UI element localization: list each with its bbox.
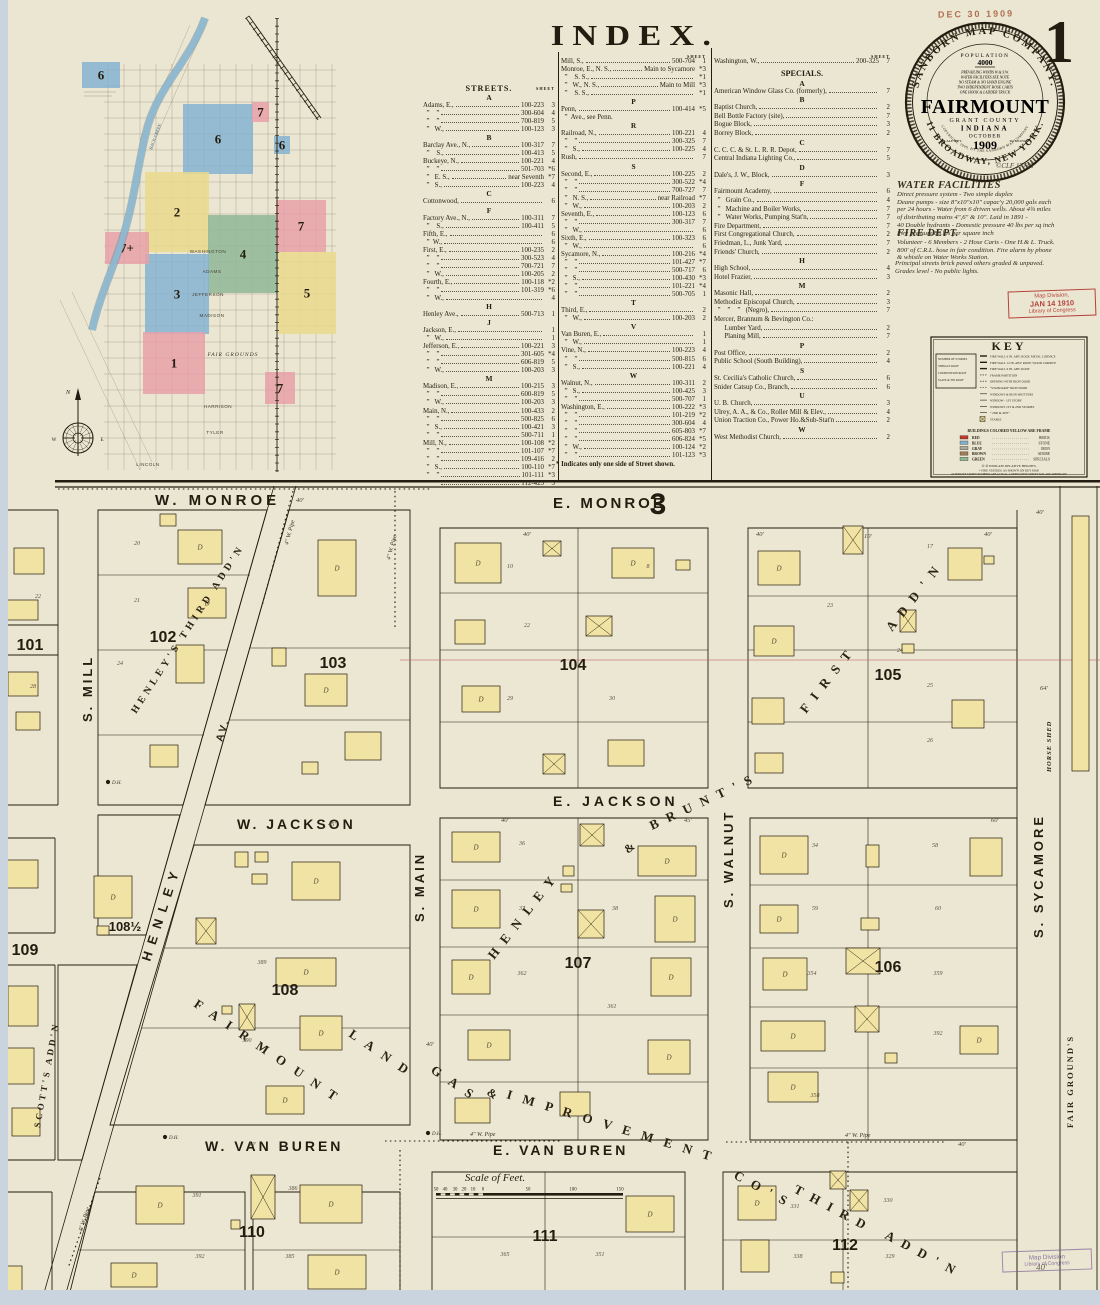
- index-row: Mercer, Brannum & Bevington Co.:: [714, 316, 890, 325]
- index-row: Ulrey, A. A., & Co., Roller Mill & Elev.…: [714, 409, 890, 418]
- key-color-chip: [960, 446, 968, 449]
- index-row: ” E. S.,near Seventh*7: [423, 174, 555, 182]
- overview-sheet-number: 7: [277, 381, 284, 396]
- index-row: ” ”300-6044: [561, 420, 706, 428]
- index-section-letter: V: [561, 323, 706, 331]
- key-alt-note: ALTERNATE STREET NUMBERS ARE ACTUAL, CON…: [951, 473, 1067, 476]
- index-row: ” ” ” (Negro),7: [714, 307, 890, 316]
- street-label: E. JACKSON: [553, 793, 679, 809]
- dwelling-mark: D: [770, 638, 776, 646]
- population-value: 4000: [978, 58, 993, 67]
- dimension-label: 40': [523, 531, 532, 538]
- lot-number: 389: [257, 960, 267, 966]
- lot-number: 385: [285, 1254, 295, 1260]
- svg-text:WATER FACILITIES SEE NOTE: WATER FACILITIES SEE NOTE: [961, 76, 1010, 80]
- index-section-letter: W: [714, 426, 890, 434]
- street-paving-note: Principal streets brick paved others gra…: [895, 260, 1099, 275]
- index-streets-column-2: SHEET Mill, S.,500-7041Monroe, E., N. S.…: [561, 52, 706, 460]
- lot-number: 21: [134, 598, 140, 604]
- compass-rose-icon: W E N: [52, 388, 104, 456]
- dwelling-mark: D: [109, 894, 115, 902]
- fire-dept-note: FIRE DEPT. Volunteer - 6 Members - 2 Hos…: [897, 228, 1099, 262]
- dimension-label: 40': [756, 531, 765, 538]
- index-column-rule: [558, 52, 559, 480]
- scale-tick: 20: [462, 1188, 467, 1193]
- index-section-letter: J: [423, 319, 555, 327]
- index-row: First, E.,100-2352: [423, 247, 555, 255]
- library-of-congress-stamp: Map Division, JAN 14 1910 Library of Con…: [1008, 288, 1097, 318]
- overview-sheet-number: 6: [279, 138, 286, 153]
- building: [97, 926, 109, 935]
- index-row: ” ”101-111*3: [423, 472, 555, 480]
- scale-tick: 30: [453, 1188, 458, 1193]
- dwelling-mark: D: [753, 1200, 759, 1208]
- index-row: West Methodist Church,2: [714, 434, 890, 443]
- building: [150, 745, 178, 767]
- dwelling-mark: D: [467, 974, 473, 982]
- fair-grounds-label: FAIR GROUNDS: [207, 352, 259, 358]
- dwelling-mark: D: [477, 696, 483, 704]
- index-row: Washington, W.,200-3257: [714, 58, 890, 67]
- key-symbol-label: OPENING WITH IRON DOOR: [990, 380, 1031, 384]
- index-row: Fifth, E.,6: [423, 231, 555, 239]
- index-row: High School,4: [714, 265, 890, 274]
- block-number: 112: [832, 1237, 858, 1254]
- index-footnote: * Indicates only one side of Street show…: [556, 461, 675, 468]
- overview-street-label: TYLER: [206, 430, 223, 435]
- key-side-label: NUMBER OF STORIES: [938, 357, 968, 361]
- compass-spoke: [84, 440, 92, 443]
- svg-text:W: W: [52, 438, 57, 443]
- dwelling-mark: D: [312, 878, 318, 886]
- note-line: Grades level - No public lights.: [895, 268, 1099, 276]
- key-side-label: COMPOSITION ROOF: [938, 371, 967, 375]
- building: [861, 918, 879, 930]
- building: [984, 556, 994, 564]
- key-side-label: SLATE & TIN ROOF: [938, 378, 964, 382]
- building: [948, 548, 982, 580]
- grid-line: [60, 300, 140, 470]
- building: [160, 514, 176, 526]
- index-section-letter: S: [714, 367, 890, 375]
- building: [6, 860, 38, 888]
- overview-sheet-number: 7: [257, 105, 264, 120]
- index-section-letter: F: [423, 207, 555, 215]
- block-number: 108½: [109, 919, 142, 934]
- key-symbol-label: WINDOWS & IRON SHUTTERS: [990, 392, 1034, 396]
- index-row: Sixth, E.,100-3236: [561, 235, 706, 243]
- index-section-letter: W: [561, 372, 706, 380]
- index-row: ” Grain Co.,4: [714, 197, 890, 206]
- dwelling-mark: D: [130, 1272, 136, 1280]
- dwelling-mark: D: [671, 916, 677, 924]
- key-color-name: RED: [972, 436, 980, 440]
- dwelling-mark: D: [789, 1033, 795, 1041]
- dwelling-mark: D: [789, 1084, 795, 1092]
- copyright-code: ©CLF 17745: [996, 162, 1033, 170]
- svg-text:SCALE 50FT.: SCALE 50FT.: [942, 139, 962, 143]
- dwelling-mark: D: [775, 565, 781, 573]
- key-symbol-label: WINDOWS 1ST & 2ND STORIES: [990, 405, 1035, 409]
- compass-spoke: [80, 427, 88, 435]
- dwelling-mark: D: [780, 852, 786, 860]
- building: [302, 762, 318, 774]
- index-section-letter: T: [561, 299, 706, 307]
- compass-spoke: [72, 444, 75, 452]
- city-name: FAIRMOUNT: [921, 96, 1050, 118]
- lot-number: 362: [517, 971, 527, 977]
- overview-sheet-number: 6: [215, 132, 222, 147]
- scale-tick: 150: [616, 1188, 624, 1193]
- index-section-letter: P: [714, 342, 890, 350]
- index-row: Lumber Yard,2: [714, 325, 890, 334]
- building: [608, 740, 644, 766]
- block-number: 105: [875, 667, 902, 684]
- lot-number: 338: [793, 1254, 803, 1260]
- lot-number: 329: [885, 1254, 895, 1260]
- building: [252, 874, 267, 884]
- building: [561, 884, 572, 892]
- block-number: 103: [320, 655, 347, 672]
- lot-number: 351: [595, 1252, 605, 1258]
- index-row: Sycamore, N.,100-216*4: [561, 251, 706, 259]
- index-row: ” ”500-7111: [423, 432, 555, 440]
- dimension-label: 40': [984, 531, 993, 538]
- block-number: 108: [272, 982, 299, 999]
- dwelling-mark: D: [629, 560, 635, 568]
- main-map: DDDDDDDDDDDDDDDDDDDDDDDDDDDDDDDDDD 4″ W.…: [0, 480, 1100, 1305]
- index-row: ” W.,100-2032: [561, 203, 706, 211]
- index-row: ” ”500-7071: [561, 396, 706, 404]
- lot-number: 58: [932, 843, 938, 849]
- scale-tick: 40: [443, 1188, 448, 1193]
- index-section-letter: R: [561, 122, 706, 130]
- index-row: ” ”300-522*4: [561, 179, 706, 187]
- index-row: St. Cecilia's Catholic Church,6: [714, 375, 890, 384]
- compass-spoke: [64, 440, 72, 443]
- lot-number: 28: [30, 684, 36, 690]
- lot-number: 24: [897, 647, 903, 654]
- note-line: Deane pumps - size 8″x10″x10″ capac'y 20…: [897, 199, 1099, 207]
- hydrant-label: D.H.: [431, 1132, 442, 1137]
- dwelling-mark: D: [474, 560, 480, 568]
- key-color-name: GRAY: [972, 447, 983, 451]
- lot-number: 37: [518, 906, 526, 912]
- index-row: ” ”300-3257: [561, 138, 706, 146]
- index-section-letter: M: [714, 282, 890, 290]
- index-row: Friedman, L., Junk Yard,7: [714, 240, 890, 249]
- key-color-material: STONE: [1038, 441, 1050, 445]
- scan-edge: [0, 0, 8, 1305]
- key-color-material: SPECIALS: [1033, 458, 1050, 462]
- index-row: ” W.,100-124*2: [561, 444, 706, 452]
- key-symbol-label: “STANDARD” IRON DOOR: [990, 385, 1028, 390]
- lot-number: 392: [933, 1031, 943, 1037]
- index-row: ” ”501-703*6: [423, 166, 555, 174]
- block-number: 104: [560, 657, 587, 674]
- compass-spoke: [80, 444, 83, 452]
- lot-number: 38: [611, 906, 618, 912]
- lot-number: 24: [117, 660, 123, 667]
- dwelling-mark: D: [667, 974, 673, 982]
- overview-key-map: 6667247357+17 WASHINGTONADAMSJEFFERSONMA…: [0, 0, 440, 478]
- index-row: Fairmount Academy,6: [714, 188, 890, 197]
- index-section-letter: P: [561, 98, 706, 106]
- note-line: Principal streets brick paved others gra…: [895, 260, 1099, 268]
- svg-text:TO AN INCH: TO AN INCH: [1009, 139, 1029, 143]
- street-label: S. WALNUT: [721, 810, 736, 909]
- dimension-label: 40': [1036, 509, 1045, 516]
- index-row: Jackson, E.,1: [423, 327, 555, 335]
- dwelling-mark: D: [665, 1054, 671, 1062]
- key-color-material: BRICK: [1039, 436, 1050, 440]
- svg-text:PREVAILING WINDS W.& S.W.: PREVAILING WINDS W.& S.W.: [960, 71, 1009, 75]
- index-row: ” W.,100-2052: [423, 271, 555, 279]
- lot-number: 391: [192, 1193, 202, 1199]
- index-row: ” S.,100-110*7: [423, 464, 555, 472]
- dwelling-mark: D: [663, 858, 669, 866]
- lot-number: 354: [807, 970, 817, 977]
- dimension-label: 45': [328, 821, 337, 828]
- note-line: 800' of C.R.L. hose in fair condition. F…: [897, 247, 1099, 255]
- building: [885, 1053, 897, 1063]
- index-section-letter: M: [423, 375, 555, 383]
- lot-number: 330: [883, 1198, 893, 1204]
- dimension-label: 64': [1040, 685, 1049, 692]
- building: [235, 852, 248, 867]
- lot-number: 17: [927, 544, 934, 550]
- key-color-material: IRON: [1041, 447, 1050, 451]
- index-row: Barclay Ave., N.,100-3177: [423, 142, 555, 150]
- index-row: ” ”300-5234: [423, 255, 555, 263]
- block-number: 107: [565, 955, 592, 972]
- key-symbol-label: ” 2ND & 4TH ”: [990, 411, 1011, 415]
- dwelling-mark: D: [472, 844, 478, 852]
- building: [455, 620, 485, 644]
- overview-sheet-number: 3: [174, 287, 181, 302]
- index-section-letter: C: [423, 190, 555, 198]
- compass-spoke: [80, 440, 88, 448]
- index-row: Seventh, E.,100-1236: [561, 211, 706, 219]
- lot-number: 34: [811, 842, 818, 849]
- county-name: GRANT COUNTY: [949, 118, 1020, 124]
- subdivision-label: HORSE SHED: [1046, 721, 1053, 773]
- index-row: ” ”301-605*4: [423, 351, 555, 359]
- index-row: Buckeye, N.,100-2214: [423, 158, 555, 166]
- overview-sheet-number: 1: [171, 356, 178, 371]
- index-row: ” ”101-319*6: [423, 287, 555, 295]
- dwelling-mark: D: [781, 971, 787, 979]
- index-row: Third, E.,2: [561, 307, 706, 315]
- index-row: ” ”109-4162: [423, 456, 555, 464]
- key-color-name: BLUE: [972, 441, 982, 445]
- building: [255, 852, 268, 862]
- sheet-number: 1: [1044, 8, 1074, 77]
- index-row: ” ”300-6044: [423, 110, 555, 118]
- index-row: ” S.,100-4213: [423, 424, 555, 432]
- lot-number: 359: [933, 971, 943, 977]
- index-row: ” W.,6: [423, 239, 555, 247]
- lot-number: 331: [790, 1204, 800, 1210]
- overview-street-label: HARRISON: [204, 404, 232, 409]
- sanborn-map-sheet: 6667247357+17 WASHINGTONADAMSJEFFERSONMA…: [0, 0, 1100, 1305]
- hydrant-dot: [426, 1131, 430, 1135]
- received-date-stamp: DEC 30 1909: [938, 8, 1014, 19]
- dimension-label: 40': [958, 1141, 967, 1148]
- index-row: ” ”101-427*7: [561, 259, 706, 267]
- index-row: ” ”500-8256: [423, 416, 555, 424]
- overview-street-label: JEFFERSON: [192, 292, 224, 297]
- index-row: Penn,100-414*5: [561, 106, 706, 114]
- scale-bar-gap: [478, 1193, 483, 1195]
- scale-tick: 50: [526, 1188, 531, 1193]
- building: [4, 1048, 34, 1084]
- index-row: Main, N.,100-4332: [423, 408, 555, 416]
- index-row: Post Office,2: [714, 350, 890, 359]
- dwelling-mark: D: [975, 1037, 981, 1045]
- key-color-chip: [960, 457, 968, 460]
- index-row: Monroe, E., N. S.,Main to Sycamore*3: [561, 66, 706, 74]
- dwelling-mark: D: [317, 1030, 323, 1038]
- key-symbol-label: STABLE: [990, 418, 1002, 422]
- lot-number: 60: [935, 906, 941, 912]
- lot-number: 361: [607, 1004, 617, 1010]
- index-row: Jefferson, E.,100-2213: [423, 343, 555, 351]
- index-row: Second, E.,100-2252: [561, 171, 706, 179]
- index-section-letter: B: [423, 134, 555, 142]
- street-label: W. MONROE: [155, 492, 280, 509]
- index-section-letter: U: [714, 392, 890, 400]
- index-row: Adams, E.,100-2233: [423, 102, 555, 110]
- index-row: ” S.,100-4253: [561, 388, 706, 396]
- overview-street-label: LINCOLN: [136, 462, 159, 467]
- index-row: ” Water Works, Pumping Stat'n,7: [714, 214, 890, 223]
- index-row: ” ”500-8156: [561, 356, 706, 364]
- index-title: INDEX.: [523, 20, 747, 53]
- subdivision-label: SCOTT'S ADD'N: [32, 1021, 60, 1128]
- index-row: C. C. C. & St. L. R. R. Depot,7: [714, 147, 890, 156]
- lot-number: 386: [288, 1186, 298, 1192]
- building: [14, 548, 44, 574]
- building: [272, 648, 286, 666]
- key-symbol-label: FIRE WALL 6 IN. ABV. ROOF, METAL CORNICE: [990, 355, 1056, 360]
- scale-label: Scale of Feet.: [465, 1172, 525, 1184]
- building: [902, 644, 914, 653]
- overview-sheet-number: 5: [304, 286, 311, 301]
- building: [676, 560, 690, 570]
- pipe-label: 4″ W. Pipe: [470, 1131, 496, 1138]
- scale-bar-gap: [460, 1193, 465, 1195]
- index-row: Washington, E.,100-222*3: [561, 404, 706, 412]
- index-section-letter: S: [561, 163, 706, 171]
- lot-number: 358: [810, 1093, 820, 1099]
- dimension-label: 10': [864, 533, 873, 540]
- index-streets-column-1: STREETS. SHEET AAdams, E.,100-2233 ” ”30…: [423, 84, 555, 488]
- year: 1909: [973, 138, 997, 152]
- dwelling-mark: D: [327, 1201, 333, 1209]
- index-row: Masonic Hall,2: [714, 290, 890, 299]
- building: [455, 1098, 490, 1123]
- dimension-label: 40': [426, 1041, 435, 1048]
- block-number: 101: [17, 637, 44, 654]
- index-row: ” S. S.,*1: [561, 74, 706, 82]
- index-section-letter: A: [714, 80, 890, 88]
- index-row: Fourth, E.,100-118*2: [423, 279, 555, 287]
- note-line: per 24 hours - Water from 6 driven wells…: [897, 206, 1099, 214]
- hydrant-dot: [106, 780, 110, 784]
- dwelling-mark: D: [156, 1202, 162, 1210]
- index-row: ” S.,100-4135: [423, 150, 555, 158]
- dwelling-mark: D: [302, 969, 308, 977]
- sheet-header-3: SHEET: [714, 52, 890, 58]
- lot-number: 22: [35, 594, 41, 600]
- key-color-material: ADOBE: [1038, 452, 1051, 456]
- lot-number: 59: [812, 906, 818, 912]
- index-section-letter: D: [714, 164, 890, 172]
- index-row: ” ”700-7277: [561, 187, 706, 195]
- index-section-letter: A: [423, 94, 555, 102]
- dwelling-mark: D: [333, 565, 339, 573]
- lot-number: 10: [507, 564, 513, 570]
- note-line: Direct pressure system - Two simple dupl…: [897, 191, 1099, 199]
- index-row: First Congregational Church,2: [714, 231, 890, 240]
- index-row: ” ”300-3177: [561, 219, 706, 227]
- key-color-name: GREEN: [972, 458, 985, 462]
- key-symbol-label: WINDOW - 1ST STORY: [990, 399, 1023, 403]
- lot-number: 25: [927, 683, 933, 689]
- index-section-letter: C: [714, 139, 890, 147]
- hydrant-dot: [163, 1135, 167, 1139]
- lot-number: 390: [242, 1038, 252, 1044]
- index-row: ” ”500-7176: [561, 267, 706, 275]
- index-row: ” ”700-7217: [423, 263, 555, 271]
- lot-number: 365: [500, 1252, 510, 1258]
- dwelling-mark: D: [775, 916, 781, 924]
- note-line: Volunteer - 6 Members - 2 Hose Carts - O…: [897, 239, 1099, 247]
- compass-spoke: [80, 424, 83, 432]
- overview-sheet-number: 4: [240, 247, 247, 262]
- block-number: 110: [239, 1224, 265, 1241]
- building: [866, 845, 879, 867]
- index-row: ” W.,100-2033: [423, 399, 555, 407]
- lot-number: 20: [134, 541, 140, 547]
- compass-spoke: [67, 440, 75, 448]
- index-row: Vine, N.,100-2234: [561, 347, 706, 355]
- index-row: ” ”605-803*7: [561, 428, 706, 436]
- overview-sheet-number: 6: [98, 68, 105, 83]
- index-row: Bogue Block,3: [714, 121, 890, 130]
- street-label: W. JACKSON: [237, 816, 356, 832]
- street-label: S. MAIN: [412, 852, 427, 922]
- index-row: Mill, N.,100-108*2: [423, 440, 555, 448]
- scale-bar-gap: [441, 1193, 446, 1195]
- compass-spoke: [64, 432, 72, 435]
- building: [1072, 516, 1089, 771]
- scale-tick: 50: [434, 1188, 439, 1193]
- compass-spoke: [84, 432, 92, 435]
- scale-bar-gap: [469, 1193, 474, 1195]
- index-row: Railroad, N.,100-2214: [561, 130, 706, 138]
- svg-text:N: N: [65, 389, 71, 396]
- building: [831, 1272, 844, 1283]
- key-frame-note: BUILDINGS COLORED YELLOW ARE FRAME: [968, 429, 1051, 433]
- index-row: Madison, E.,100-2153: [423, 383, 555, 391]
- dimension-label: 40': [248, 1141, 257, 1148]
- index-row: Methodist Episcopal Church,3: [714, 299, 890, 308]
- dwelling-mark: D: [281, 1097, 287, 1105]
- index-row: U. B. Church,3: [714, 400, 890, 409]
- dwelling-mark: D: [646, 1211, 652, 1219]
